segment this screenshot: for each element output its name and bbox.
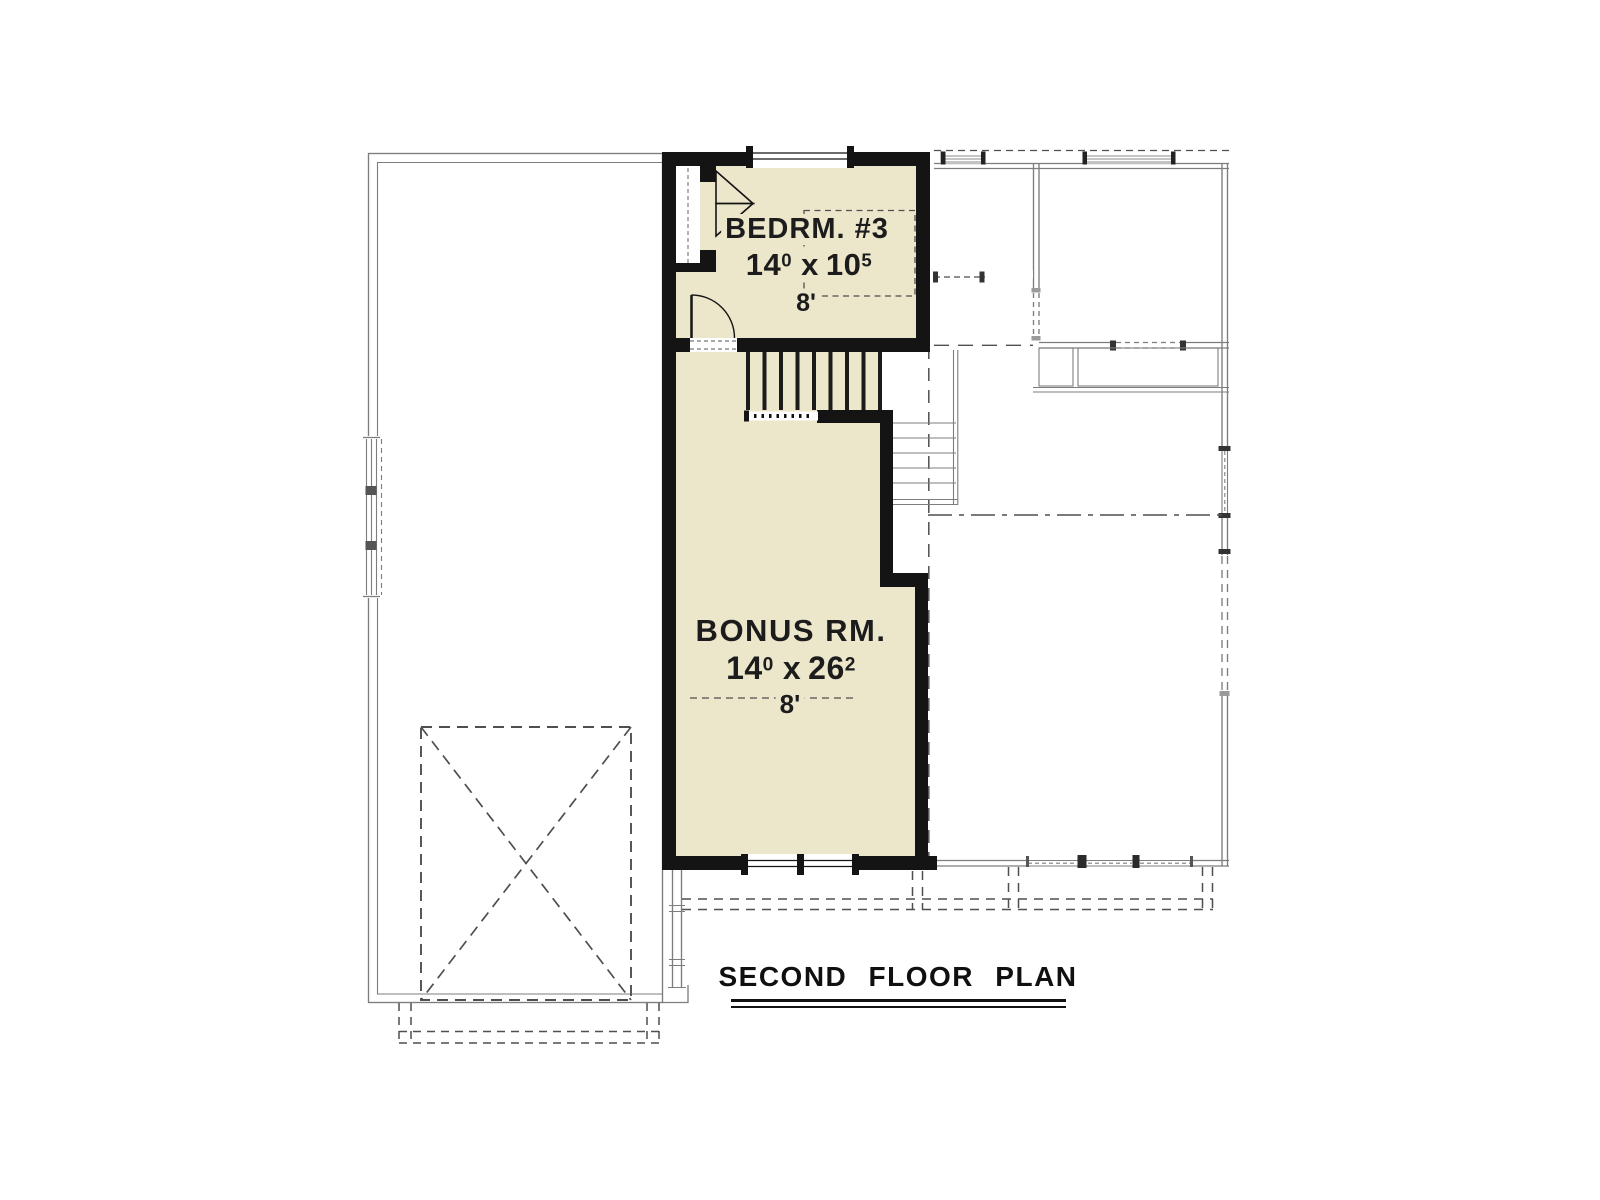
top-beam-window-1 [941, 152, 986, 165]
plan-title: SECOND FLOOR PLAN [718, 963, 1077, 991]
first-floor-wall-below-bonus [668, 870, 686, 988]
stair-railing [744, 411, 818, 422]
left-wall-window [362, 436, 382, 598]
bedroom3-dim-separator: x [801, 247, 819, 282]
bedroom3-dim-width: 14 [746, 247, 781, 282]
bottom-window-band [1026, 855, 1193, 869]
bonus-dim-width: 14 [726, 650, 763, 686]
bedroom3-label: BEDRM. #3 [721, 214, 893, 245]
floor-plan-drawing [0, 0, 1600, 1200]
bedroom3-window [746, 146, 854, 168]
bedroom3-dimensions: 140x105 [742, 248, 876, 281]
bottom-outer-wall [930, 855, 1229, 869]
bonus-dim-length-inches: 2 [845, 654, 856, 675]
closets-below [1033, 348, 1229, 392]
bonus-dim-width-inches: 0 [763, 654, 774, 675]
bonus-upper-floor [663, 410, 893, 590]
floor-plan-page: BEDRM. #3 140x105 8' BONUS RM. 140x262 8… [0, 0, 1600, 1200]
bedroom3-dim-length: 10 [826, 247, 861, 282]
open-below-x-marker [421, 727, 631, 1000]
bedroom3-ceiling-height: 8' [792, 290, 820, 317]
garage-apron-dashed [399, 1003, 659, 1043]
bonus-dimensions: 140x262 [722, 651, 860, 685]
bedroom3-dim-length-inches: 5 [861, 250, 872, 271]
bonus-dim-separator: x [783, 650, 801, 686]
top-beam-window-2 [1083, 152, 1176, 165]
bonus-label: BONUS RM. [692, 614, 891, 647]
stairs-below [893, 350, 958, 505]
plan-title-underline [731, 999, 1066, 1008]
bonus-ceiling-height: 8' [776, 690, 805, 718]
room-below-top-right [933, 163, 1229, 351]
garage-roof-outline [362, 154, 689, 1044]
counter-shelf-below [985, 271, 1033, 279]
bonus-dim-length: 26 [808, 650, 845, 686]
bonus-window [741, 854, 859, 875]
bedroom3-dim-width-inches: 0 [781, 250, 792, 271]
